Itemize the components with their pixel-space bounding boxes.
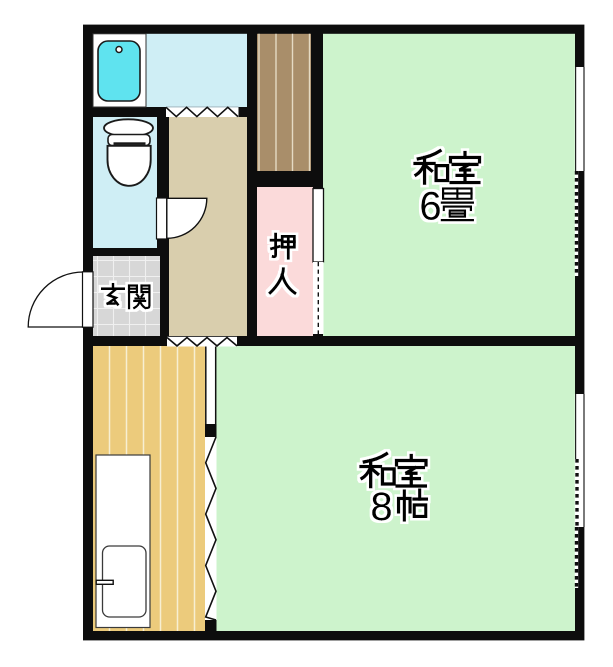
svg-text:8: 8 — [370, 485, 392, 529]
svg-text:6: 6 — [419, 185, 441, 229]
